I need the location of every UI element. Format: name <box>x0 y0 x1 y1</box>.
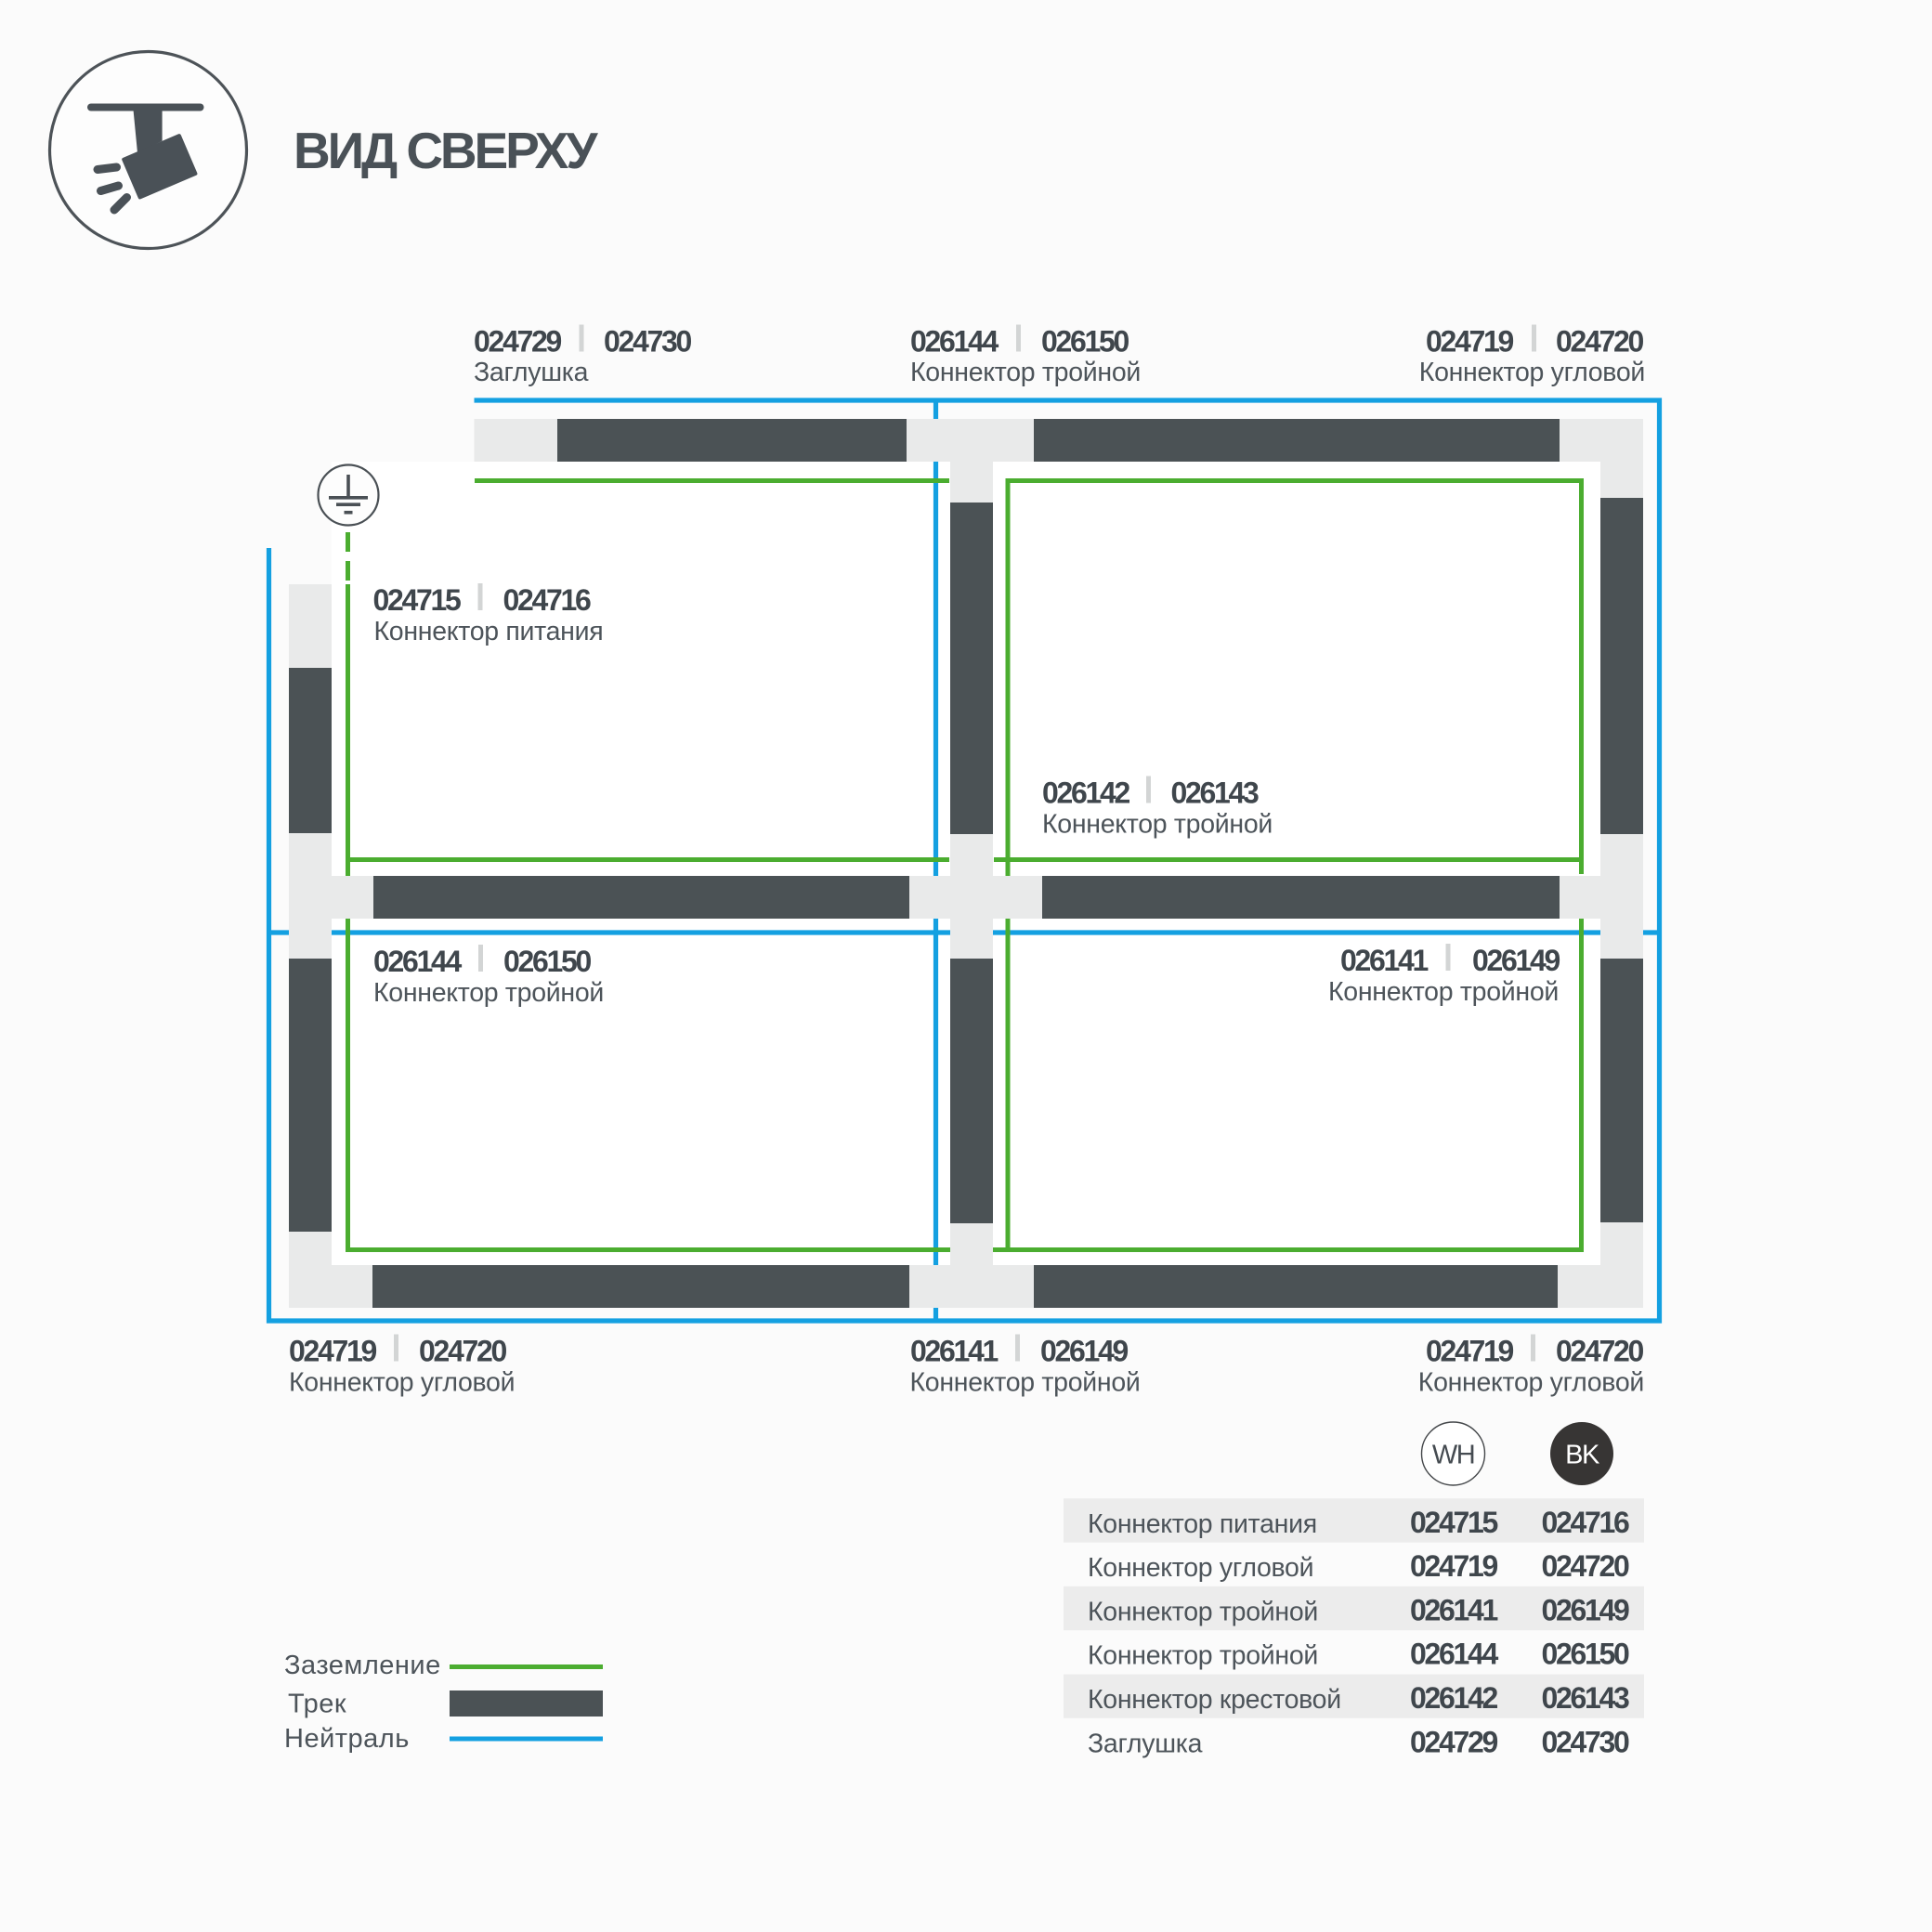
svg-text:Коннектор тройной: Коннектор тройной <box>910 358 1141 387</box>
svg-text:024730: 024730 <box>604 325 691 359</box>
svg-text:026149: 026149 <box>1472 944 1560 977</box>
svg-text:024716: 024716 <box>1542 1506 1629 1539</box>
svg-text:Заземление: Заземление <box>284 1651 441 1680</box>
svg-text:026150: 026150 <box>1542 1638 1629 1671</box>
svg-text:Коннектор угловой: Коннектор угловой <box>1088 1553 1313 1583</box>
svg-text:Коннектор тройной: Коннектор тройной <box>1042 810 1273 840</box>
svg-text:024715: 024715 <box>373 583 461 617</box>
svg-text:024720: 024720 <box>1542 1549 1629 1583</box>
svg-text:024719: 024719 <box>1426 1335 1513 1368</box>
svg-text:024716: 024716 <box>503 583 591 617</box>
svg-text:026142: 026142 <box>1042 777 1129 810</box>
svg-text:024715: 024715 <box>1410 1506 1497 1539</box>
svg-text:026144: 026144 <box>910 325 999 359</box>
svg-text:026143: 026143 <box>1171 777 1259 810</box>
svg-text:Коннектор тройной: Коннектор тройной <box>1088 1597 1318 1626</box>
svg-text:026141: 026141 <box>1340 944 1428 977</box>
svg-text:Нейтраль: Нейтраль <box>284 1724 410 1754</box>
svg-text:024719: 024719 <box>289 1335 376 1368</box>
svg-text:WH: WH <box>1432 1441 1474 1470</box>
svg-text:024720: 024720 <box>1556 325 1643 359</box>
svg-text:Коннектор питания: Коннектор питания <box>1088 1509 1317 1539</box>
svg-text:024720: 024720 <box>419 1335 506 1368</box>
svg-text:026141: 026141 <box>1410 1593 1497 1626</box>
svg-text:026143: 026143 <box>1542 1681 1629 1715</box>
svg-text:Коннектор крестовой: Коннектор крестовой <box>1088 1685 1341 1715</box>
svg-text:BK: BK <box>1565 1441 1600 1470</box>
svg-text:026149: 026149 <box>1542 1593 1629 1626</box>
svg-text:Коннектор тройной: Коннектор тройной <box>910 1368 1141 1398</box>
svg-text:024729: 024729 <box>1410 1725 1497 1758</box>
svg-text:024719: 024719 <box>1410 1549 1497 1583</box>
svg-text:026141: 026141 <box>910 1335 998 1368</box>
svg-text:Трек: Трек <box>288 1690 346 1719</box>
svg-text:Коннектор тройной: Коннектор тройной <box>1328 977 1559 1007</box>
svg-text:024720: 024720 <box>1556 1335 1643 1368</box>
svg-text:026144: 026144 <box>373 945 462 978</box>
svg-text:Заглушка: Заглушка <box>1088 1729 1203 1758</box>
svg-text:Коннектор угловой: Коннектор угловой <box>289 1368 515 1398</box>
svg-text:024719: 024719 <box>1426 325 1513 359</box>
svg-text:026144: 026144 <box>1410 1638 1498 1671</box>
svg-text:Коннектор тройной: Коннектор тройной <box>1088 1641 1318 1671</box>
svg-text:026149: 026149 <box>1040 1335 1128 1368</box>
svg-text:Коннектор тройной: Коннектор тройной <box>373 978 604 1008</box>
svg-text:026142: 026142 <box>1410 1681 1497 1715</box>
svg-text:026150: 026150 <box>503 945 591 978</box>
svg-text:Коннектор угловой: Коннектор угловой <box>1418 1368 1644 1398</box>
svg-text:Коннектор угловой: Коннектор угловой <box>1419 358 1645 387</box>
svg-text:ВИД СВЕРХУ: ВИД СВЕРХУ <box>294 122 598 179</box>
svg-text:Коннектор питания: Коннектор питания <box>374 617 604 646</box>
svg-text:024730: 024730 <box>1542 1725 1629 1758</box>
svg-text:026150: 026150 <box>1041 325 1129 359</box>
svg-text:Заглушка: Заглушка <box>474 358 589 387</box>
svg-text:024729: 024729 <box>474 325 561 359</box>
